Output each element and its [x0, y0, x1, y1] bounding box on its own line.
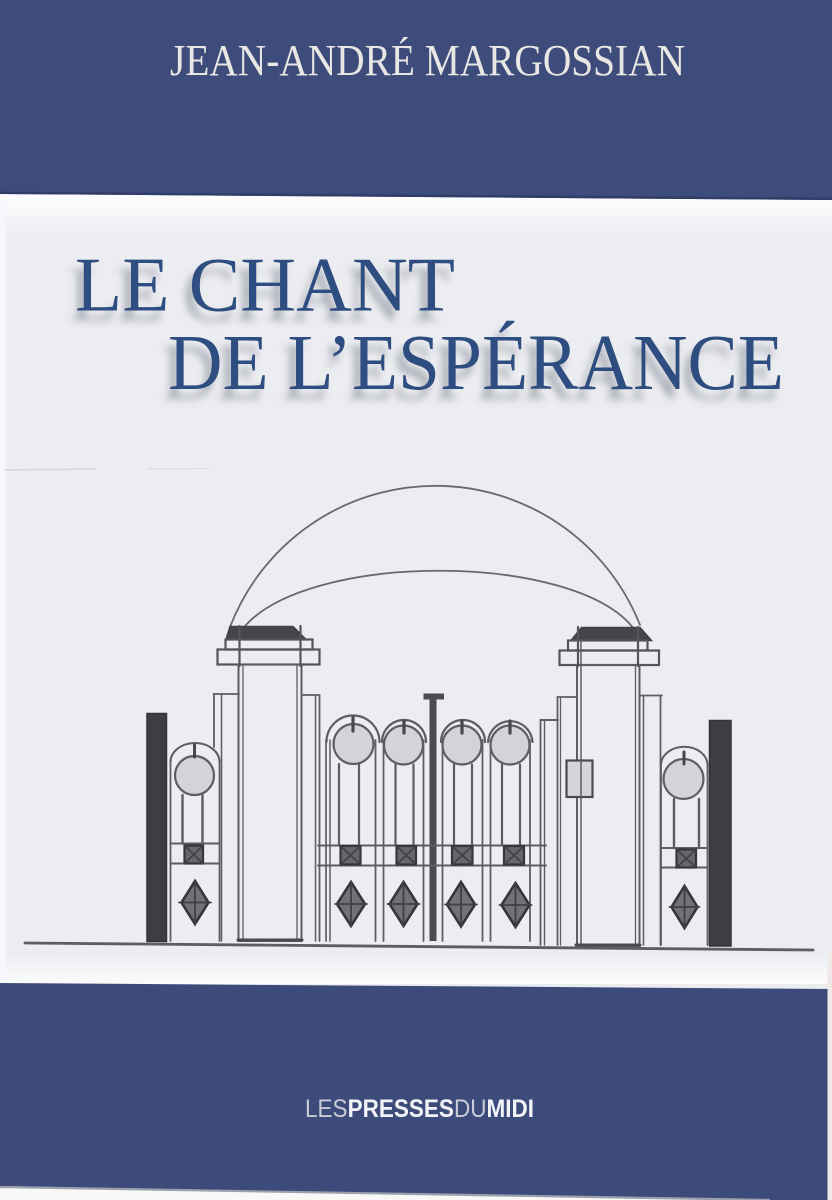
svg-text:LE CHANT: LE CHANT — [75, 242, 455, 328]
svg-text:JEAN-ANDRÉ MARGOSSIAN: JEAN-ANDRÉ MARGOSSIAN — [170, 36, 685, 85]
svg-text:LESPRESSESDUMIDI: LESPRESSESDUMIDI — [305, 1095, 534, 1123]
svg-text:DE L’ESPÉRANCE: DE L’ESPÉRANCE — [168, 320, 784, 407]
